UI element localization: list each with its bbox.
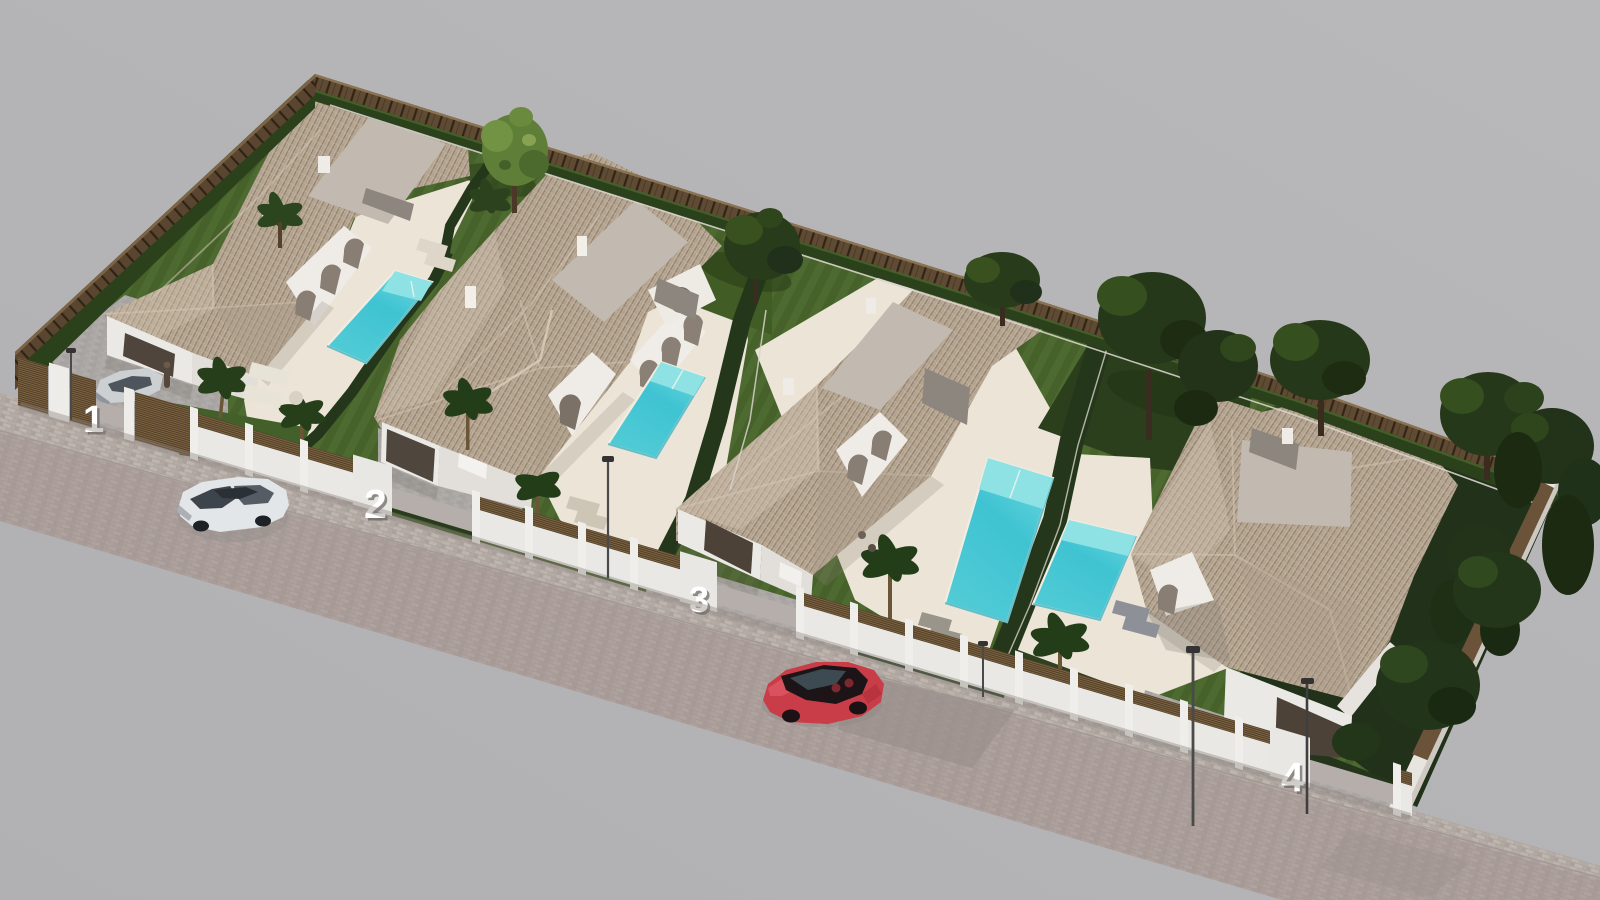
svg-text:3: 3 [689,579,709,620]
svg-text:1: 1 [83,399,104,441]
svg-text:2: 2 [364,481,387,527]
